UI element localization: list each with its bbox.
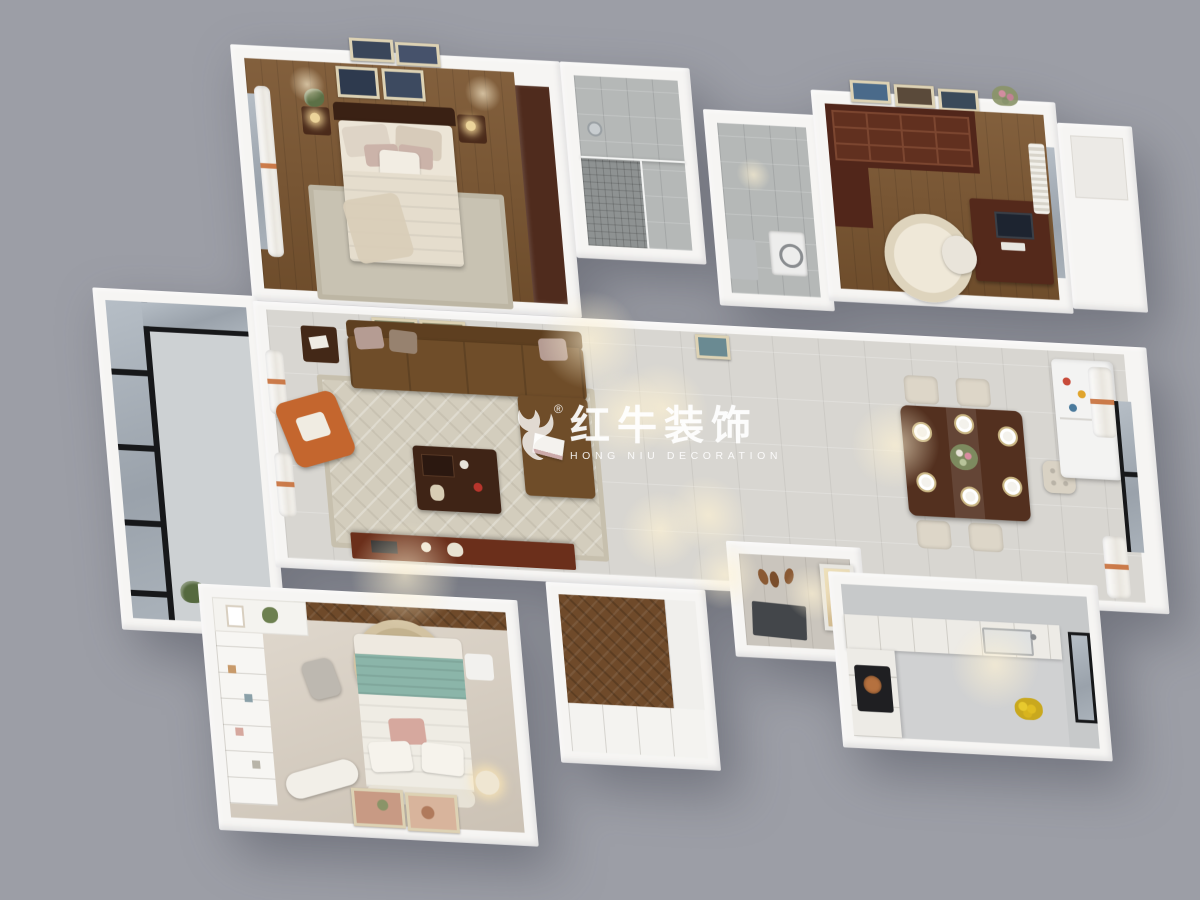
flower-vase (991, 85, 1019, 106)
dining-chair (903, 375, 939, 405)
kitchen-sink (982, 627, 1034, 656)
bathroom-shower (560, 61, 707, 264)
book (308, 335, 329, 349)
balcony-window-top (141, 302, 248, 337)
shower-area (581, 159, 648, 249)
picture-frame (695, 334, 731, 360)
wall-frame (349, 37, 395, 62)
shelf-item (228, 665, 237, 673)
bookcase-shelves (831, 110, 973, 168)
desk-vanity (212, 597, 309, 636)
brand-text: 红牛装饰 HONG NIU DECORATION (570, 404, 782, 462)
wardrobe-cabinets (568, 703, 708, 758)
wall-frame (395, 42, 441, 67)
pillow (389, 329, 417, 354)
picture-frame (335, 66, 380, 99)
side-table (300, 325, 339, 363)
fridge-magnet (1062, 377, 1071, 385)
closet-room (545, 581, 721, 770)
dining-chair (955, 378, 991, 408)
av-device (371, 540, 398, 553)
hall-closet (1057, 123, 1148, 313)
decor-cup (473, 483, 483, 493)
closet-floor (558, 594, 673, 708)
kitchen-counter-side (846, 648, 902, 738)
study-room (811, 90, 1074, 314)
coffee-table (412, 445, 502, 514)
brand-name-en: HONG NIU DECORATION (570, 450, 782, 462)
desk-frame (225, 605, 245, 628)
watermark: ® 红牛装饰 HONG NIU DECORATION (508, 404, 788, 466)
bathroom-vanity (727, 238, 758, 280)
table-lamp (465, 121, 476, 132)
master-bedroom (230, 44, 582, 318)
pillow (367, 741, 414, 773)
tray (421, 454, 455, 478)
registered-mark: ® (554, 402, 563, 416)
wall-frame (849, 80, 891, 104)
bookcase (825, 103, 980, 173)
decor-vase (447, 542, 464, 557)
floorplan-render: ® 红牛装饰 HONG NIU DECORATION (0, 0, 1200, 900)
dining-chair (968, 522, 1004, 552)
decor-bowl (459, 460, 469, 470)
fridge-magnet (1069, 404, 1078, 412)
kitchen (828, 571, 1113, 761)
table-lamp (310, 112, 321, 123)
wall-frame (894, 84, 936, 108)
fridge-magnet (1077, 390, 1086, 398)
shelf-item (244, 694, 253, 702)
pillow (295, 411, 332, 442)
door-mat (752, 601, 807, 641)
decor-vase (430, 484, 445, 501)
pillow (421, 742, 464, 777)
shelf-item (235, 727, 244, 735)
monitor (994, 211, 1034, 239)
window-frame-bar (1124, 472, 1137, 478)
closet-panel (1070, 135, 1128, 200)
floor-artwork (405, 792, 460, 833)
pillow (538, 338, 569, 360)
keyboard (1001, 242, 1026, 251)
dining-chair (916, 520, 952, 550)
apartment-plan (245, 45, 1200, 897)
picture-frame (381, 68, 426, 101)
teal-blanket (355, 654, 466, 700)
nightstand (464, 653, 494, 681)
floor-artwork (351, 788, 406, 829)
washer-door (778, 243, 804, 268)
plant (303, 88, 325, 107)
second-bedroom (198, 583, 539, 846)
plant (261, 607, 278, 624)
cabinet (830, 166, 873, 228)
decor-bowl (421, 542, 432, 553)
washing-machine (768, 231, 808, 277)
faucet (1030, 634, 1037, 640)
pillow (353, 326, 385, 350)
brand-name-cn: 红牛装饰 (570, 404, 782, 448)
shelf-item (252, 760, 261, 768)
